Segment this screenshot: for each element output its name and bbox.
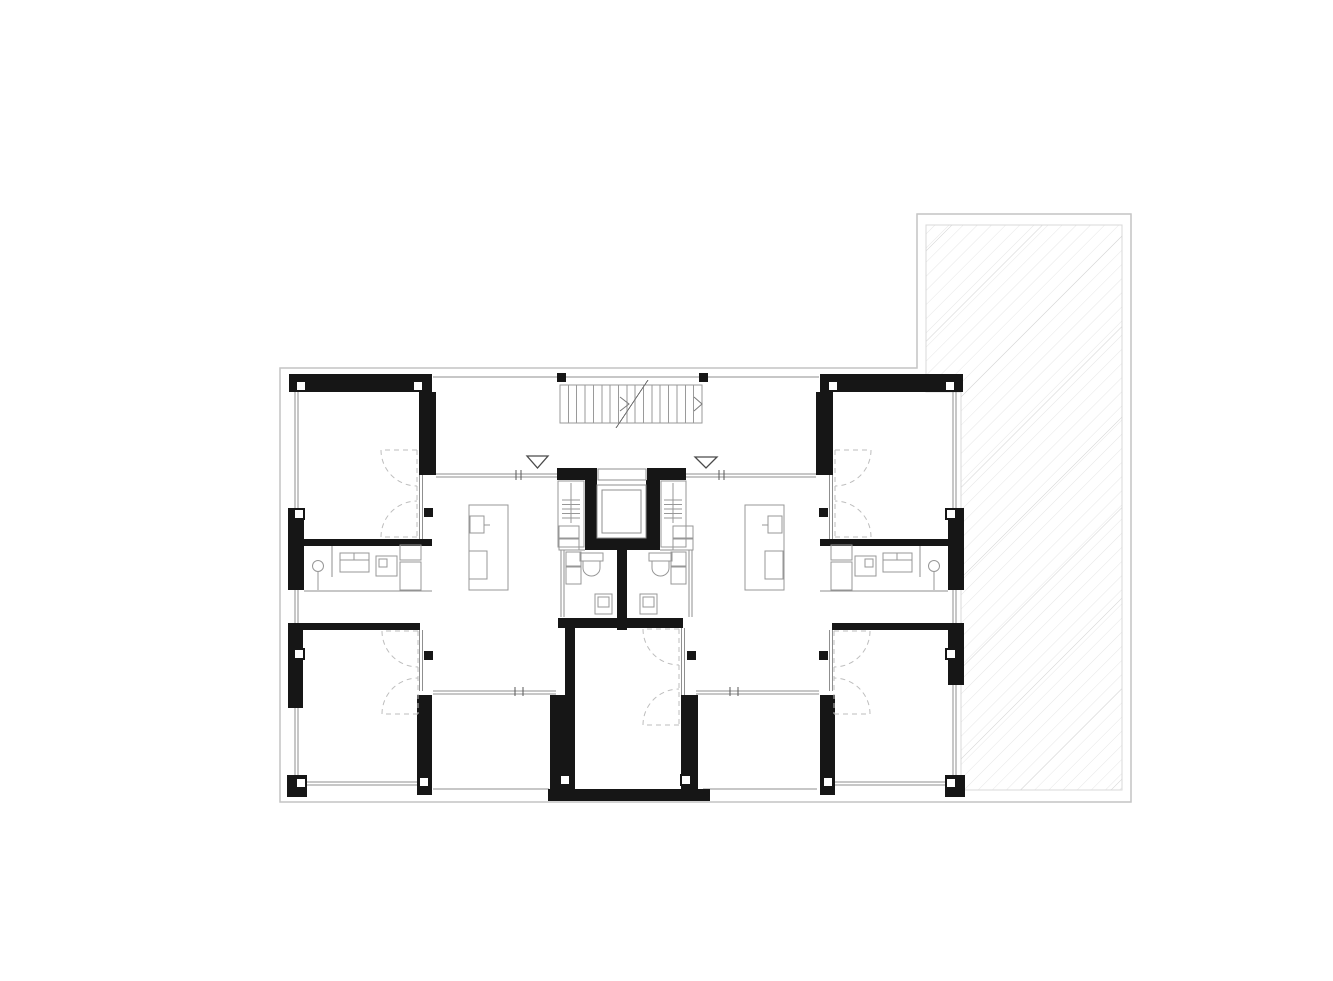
bath-cabinet xyxy=(831,545,852,560)
column-marker xyxy=(681,775,691,785)
door-swing-arc xyxy=(835,501,871,537)
bath-cabinet xyxy=(400,545,421,560)
column-marker xyxy=(828,381,838,391)
wall xyxy=(820,374,963,392)
bath-appliance-detail xyxy=(865,559,873,567)
shaft-cabinet xyxy=(559,526,579,538)
wall xyxy=(289,374,432,392)
column-marker xyxy=(946,778,956,788)
column xyxy=(557,373,566,382)
wall xyxy=(289,623,420,630)
column xyxy=(699,373,708,382)
bath-cabinet xyxy=(831,562,852,590)
wall xyxy=(565,628,575,790)
door-swing-arc xyxy=(643,689,679,725)
wall xyxy=(816,392,833,475)
door-swing xyxy=(381,450,417,537)
column xyxy=(819,508,828,517)
door-swing-arc xyxy=(382,631,418,667)
column-marker xyxy=(560,775,570,785)
wall xyxy=(617,548,627,630)
wall xyxy=(948,508,964,590)
wall xyxy=(419,392,436,475)
floor-plan-page xyxy=(0,0,1333,981)
wall xyxy=(557,468,597,480)
column xyxy=(424,651,433,660)
wc-sink-basin xyxy=(643,597,654,607)
wc-cistern xyxy=(580,553,603,561)
bath-drain xyxy=(313,561,324,572)
column-marker xyxy=(296,381,306,391)
terrace-hatch-accent xyxy=(926,225,1122,790)
elevator-cab-inner xyxy=(602,490,641,533)
column xyxy=(819,651,828,660)
elevator-door xyxy=(598,469,646,480)
door-swing xyxy=(835,450,871,537)
kitchen-stove xyxy=(765,551,783,579)
wc-cabinet xyxy=(566,552,581,566)
column-marker xyxy=(413,381,423,391)
column xyxy=(687,651,696,660)
kitchen-sink xyxy=(470,516,484,533)
wc-toilet-bowl xyxy=(652,561,669,576)
stair-direction-arrow xyxy=(620,397,629,411)
column-marker xyxy=(296,778,306,788)
bath-drain xyxy=(929,561,940,572)
door-swing-arc xyxy=(835,450,871,486)
stair-direction-arrow xyxy=(694,397,702,411)
elevator-cab xyxy=(597,485,646,538)
column-marker xyxy=(294,509,304,519)
wc-cistern xyxy=(649,553,672,561)
wall xyxy=(288,508,304,590)
column-marker xyxy=(946,509,956,519)
door-swing-arc xyxy=(834,631,870,667)
kitchen-stove xyxy=(469,551,487,579)
bath-cabinet xyxy=(400,562,421,590)
entry-marker xyxy=(527,456,548,468)
door-swing-arc xyxy=(834,678,870,714)
entry-marker xyxy=(695,457,717,468)
column-marker xyxy=(945,381,955,391)
wall xyxy=(548,789,710,801)
door-swing-arc xyxy=(381,450,417,486)
wc-cabinet xyxy=(566,567,581,584)
column-marker xyxy=(294,649,304,659)
door-swing xyxy=(834,631,870,714)
stair-outline xyxy=(560,385,702,423)
bath-appliance-detail xyxy=(379,559,387,567)
column-marker xyxy=(823,777,833,787)
column-marker xyxy=(419,777,429,787)
wall xyxy=(832,623,963,630)
shaft-cabinet xyxy=(673,539,693,550)
wall xyxy=(558,618,683,628)
door-swing-arc xyxy=(643,629,679,665)
wc-toilet-bowl xyxy=(583,561,600,576)
column xyxy=(424,508,433,517)
kitchen-sink xyxy=(768,516,782,533)
wall xyxy=(647,468,686,480)
wc-cabinet xyxy=(671,552,686,566)
wc-cabinet xyxy=(671,567,686,584)
door-swing xyxy=(382,631,418,714)
door-swing-arc xyxy=(382,678,418,714)
wc-sink-basin xyxy=(598,597,609,607)
floor-plan-drawing xyxy=(0,0,1333,981)
door-swing-arc xyxy=(381,501,417,537)
kitchen-island xyxy=(469,505,508,590)
door-swing xyxy=(643,629,679,725)
column-marker xyxy=(946,649,956,659)
wall xyxy=(288,623,303,708)
shaft-cabinet xyxy=(559,539,579,550)
shaft-cabinet xyxy=(673,526,693,538)
